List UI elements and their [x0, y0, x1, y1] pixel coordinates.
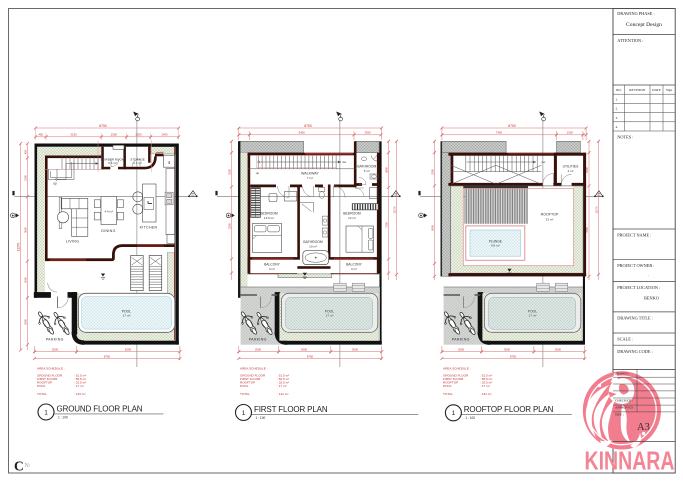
svg-text:1: 1: [452, 410, 456, 417]
svg-text:4.: 4.: [616, 125, 619, 129]
svg-text:LIVING: LIVING: [66, 239, 80, 243]
svg-text:TOTAL: TOTAL: [37, 392, 47, 396]
svg-text:3350: 3350: [364, 131, 371, 135]
svg-text:3000: 3000: [352, 348, 359, 352]
svg-text:17 m²: 17 m²: [123, 314, 131, 318]
svg-text:2190: 2190: [23, 175, 27, 181]
svg-text:4.4 m²: 4.4 m²: [104, 209, 113, 213]
svg-text:11370: 11370: [393, 206, 397, 214]
svg-text:.: .: [648, 272, 649, 277]
svg-text:8750: 8750: [307, 354, 314, 358]
svg-text:BEDROOM: BEDROOM: [343, 212, 361, 216]
svg-text:SCALE :: SCALE :: [617, 337, 633, 342]
svg-text:0.6 m²: 0.6 m²: [108, 161, 117, 165]
svg-text:3000: 3000: [301, 348, 308, 352]
svg-text:ROOFTOP FLOOR PLAN: ROOFTOP FLOOR PLAN: [464, 405, 554, 414]
svg-text:2.1 m²: 2.1 m²: [133, 161, 142, 165]
svg-text:450: 450: [23, 149, 27, 154]
svg-text:1: 1: [242, 410, 246, 417]
svg-text:2300: 2300: [431, 169, 435, 175]
svg-text:ATTENTION :: ATTENTION :: [617, 38, 643, 43]
svg-text:: 17 m²: : 17 m²: [74, 384, 84, 388]
svg-text:TOTAL: TOTAL: [240, 392, 250, 396]
svg-text:13.5 m²: 13.5 m²: [264, 216, 274, 220]
svg-text:3000: 3000: [555, 348, 562, 352]
svg-text:11370: 11370: [17, 242, 21, 251]
svg-text:WALKWAY: WALKWAY: [301, 172, 319, 176]
svg-text:PROJECT LOCATION :: PROJECT LOCATION :: [617, 285, 660, 290]
svg-text:GROUND FLOOR PLAN: GROUND FLOOR PLAN: [57, 404, 143, 413]
svg-text:3 m²: 3 m²: [269, 267, 275, 271]
svg-text:8750: 8750: [99, 124, 107, 128]
svg-text:5600: 5600: [431, 225, 435, 231]
svg-text:11370: 11370: [595, 206, 599, 214]
svg-text:POOL: POOL: [37, 384, 46, 388]
svg-text:PARKING: PARKING: [46, 338, 64, 342]
svg-text:6296: 6296: [125, 348, 132, 352]
svg-text:FIRST FLOOR PLAN: FIRST FLOOR PLAN: [254, 405, 328, 414]
svg-text:2000: 2000: [23, 277, 27, 283]
svg-text:1 : 100: 1 : 100: [58, 415, 68, 419]
svg-text:2.: 2.: [616, 107, 619, 111]
svg-text:1: 1: [44, 409, 48, 416]
svg-text:PROJECT OWNER :: PROJECT OWNER :: [617, 263, 654, 268]
svg-text:BENKO: BENKO: [644, 296, 659, 301]
svg-text:2590: 2590: [23, 319, 27, 325]
svg-text:NOTES :: NOTES :: [617, 134, 633, 139]
svg-text:3 m²: 3 m²: [351, 267, 357, 271]
svg-text:8750: 8750: [104, 354, 111, 358]
svg-text:: 134 m²: : 134 m²: [74, 392, 85, 396]
svg-text:8750: 8750: [510, 354, 517, 358]
svg-text:7 m²: 7 m²: [307, 176, 313, 180]
svg-text:C: C: [14, 459, 24, 474]
svg-text:3600: 3600: [23, 227, 27, 233]
svg-text:2500: 2500: [458, 348, 465, 352]
svg-text:BATHROOM: BATHROOM: [303, 240, 323, 244]
svg-text:1 : 100: 1 : 100: [256, 416, 266, 420]
svg-text:POOL: POOL: [240, 384, 249, 388]
svg-text:1 : 100: 1 : 100: [465, 416, 475, 420]
svg-text:up: up: [53, 182, 57, 186]
svg-text:: 17 m²: : 17 m²: [277, 384, 287, 388]
svg-text:5300: 5300: [228, 223, 232, 229]
svg-text:AREA SCHEDULE :: AREA SCHEDULE :: [240, 366, 268, 370]
svg-text:A3: A3: [637, 422, 650, 433]
svg-text:3800: 3800: [385, 167, 389, 173]
svg-text:up: up: [256, 171, 260, 175]
svg-text:8750: 8750: [304, 124, 312, 128]
svg-text:3.: 3.: [616, 116, 619, 120]
svg-text:2500: 2500: [111, 133, 118, 137]
svg-text:AREA SCHEDULE :: AREA SCHEDULE :: [37, 366, 65, 370]
svg-text:23 m²: 23 m²: [546, 217, 554, 221]
svg-text:KINNARA: KINNARA: [585, 446, 675, 476]
svg-text:Concept Design: Concept Design: [626, 22, 662, 28]
svg-text:1400: 1400: [161, 133, 168, 137]
svg-text:7300: 7300: [385, 222, 389, 228]
svg-text:450: 450: [38, 133, 43, 137]
svg-text:: 17 m²: : 17 m²: [480, 384, 490, 388]
svg-text:17 m²: 17 m²: [326, 314, 334, 318]
svg-text:KITCHEN: KITCHEN: [140, 226, 158, 230]
svg-text:5 m²: 5 m²: [364, 169, 370, 173]
svg-text:TOTAL: TOTAL: [443, 392, 453, 396]
svg-text:N:: N:: [25, 463, 31, 469]
svg-text:7450: 7450: [496, 131, 503, 135]
svg-text:3190: 3190: [70, 133, 77, 137]
svg-text:Sign: Sign: [666, 88, 673, 92]
svg-text:BEDROOM: BEDROOM: [260, 212, 278, 216]
svg-text:2500: 2500: [255, 348, 262, 352]
svg-text:1.: 1.: [616, 98, 619, 102]
svg-text:PARKING: PARKING: [249, 338, 267, 342]
svg-text:3000: 3000: [504, 348, 511, 352]
svg-text:REVISION: REVISION: [629, 88, 645, 92]
svg-text:UTILITIES: UTILITIES: [563, 164, 580, 168]
svg-text:12 m²: 12 m²: [348, 216, 356, 220]
svg-text:CHECKED :: CHECKED :: [615, 399, 633, 403]
svg-text:5400: 5400: [299, 131, 306, 135]
svg-text:2500: 2500: [52, 348, 59, 352]
svg-text:APPROVED :: APPROVED :: [615, 405, 635, 409]
svg-text:2300: 2300: [228, 169, 232, 175]
svg-text:DATE: DATE: [652, 88, 661, 92]
svg-text:DRAWING PHASE :: DRAWING PHASE :: [617, 11, 654, 16]
svg-text:DRAWN :: DRAWN :: [615, 372, 629, 376]
svg-text:ROOFTOP: ROOFTOP: [541, 213, 559, 217]
svg-text:: 134 m²: : 134 m²: [480, 392, 491, 396]
svg-text:DRAWING CODE :: DRAWING CODE :: [617, 349, 652, 354]
svg-text:2300: 2300: [135, 133, 142, 137]
svg-text:AREA SCHEDULE :: AREA SCHEDULE :: [443, 366, 471, 370]
svg-text:DRAWING TITLE :: DRAWING TITLE :: [617, 316, 653, 321]
svg-text:17 m²: 17 m²: [529, 314, 537, 318]
svg-text:DINING: DINING: [101, 229, 115, 233]
svg-text:8750: 8750: [508, 124, 516, 128]
svg-text:: 134 m²: : 134 m²: [277, 392, 288, 396]
svg-text:PROJECT NAME :: PROJECT NAME :: [617, 233, 651, 238]
svg-text:9.6 m²: 9.6 m²: [491, 244, 500, 248]
svg-text:PARKING: PARKING: [452, 338, 470, 342]
svg-text:POOL: POOL: [443, 384, 452, 388]
svg-text:3 m²: 3 m²: [568, 169, 574, 173]
svg-text:NO.: NO.: [616, 88, 622, 92]
svg-text:SIZE :: SIZE :: [615, 412, 624, 416]
svg-text:10 m²: 10 m²: [309, 245, 317, 249]
svg-text:1300: 1300: [567, 131, 574, 135]
